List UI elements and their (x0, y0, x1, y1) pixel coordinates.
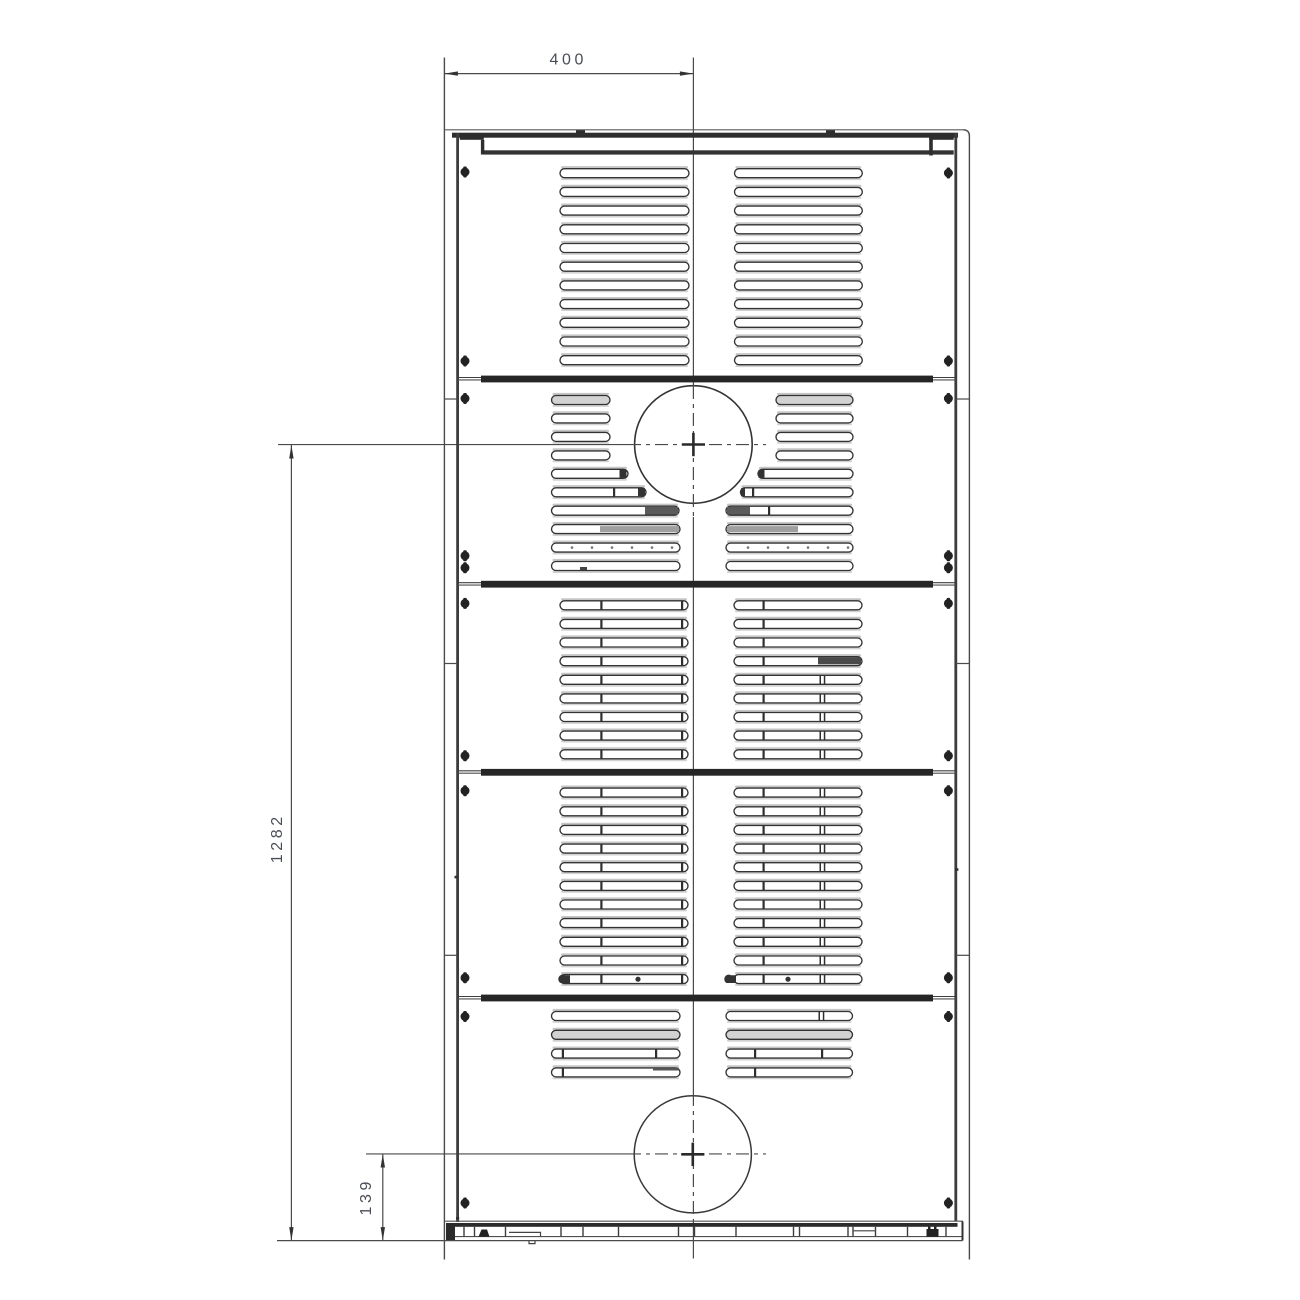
svg-text:400: 400 (550, 51, 588, 68)
svg-text:1282: 1282 (269, 813, 286, 863)
svg-text:139: 139 (358, 1178, 375, 1216)
